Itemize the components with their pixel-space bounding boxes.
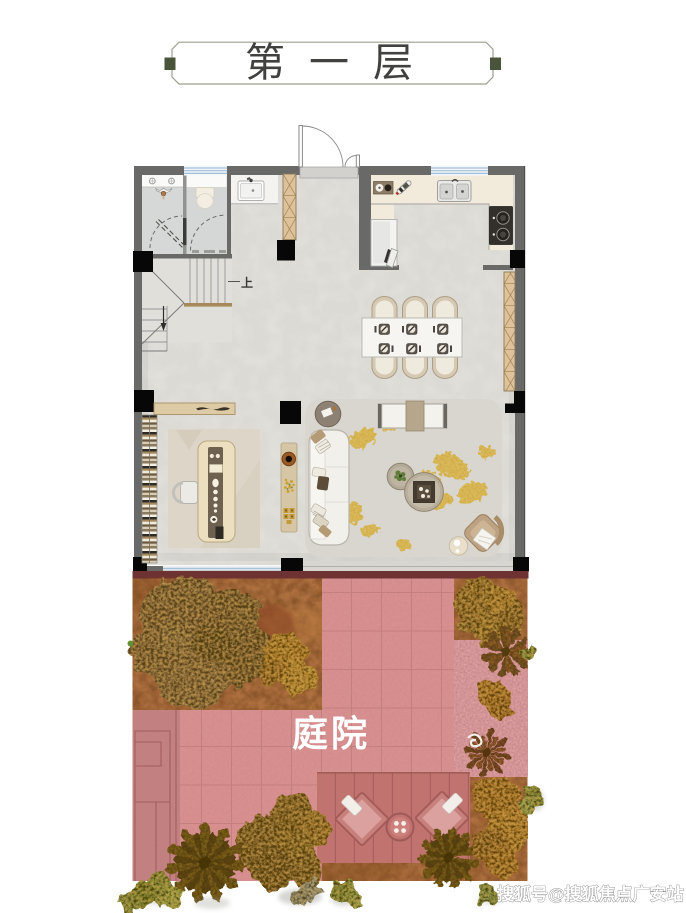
svg-text:上: 上 xyxy=(241,275,253,290)
svg-text:搜狐号@搜狐焦点广安站: 搜狐号@搜狐焦点广安站 xyxy=(497,884,684,904)
svg-text:第一层: 第一层 xyxy=(245,40,437,85)
svg-text:庭院: 庭院 xyxy=(292,713,370,754)
